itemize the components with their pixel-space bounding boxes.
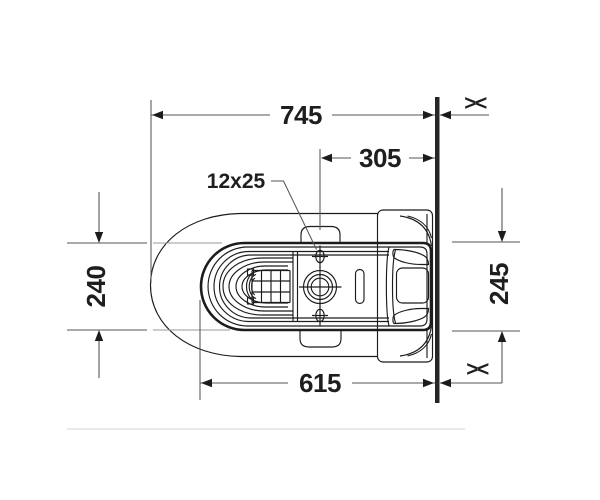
technical-drawing-canvas: 745 305 12x25 240 245 615 <box>0 0 600 500</box>
wall-break-symbol-top: >< <box>464 92 487 115</box>
dimension-245: 245 <box>452 188 520 383</box>
wall-line <box>435 97 440 403</box>
bowl-footprint-outline <box>151 214 378 357</box>
toilet-plan-drawing: 745 305 12x25 240 245 615 <box>0 0 600 500</box>
trapway-grid <box>252 271 290 303</box>
cistern-outline <box>378 210 433 362</box>
flush-plate <box>299 246 364 327</box>
dim-245-label: 245 <box>484 263 514 305</box>
callout-12x25: 12x25 <box>207 170 317 250</box>
wall-reference-top: >< <box>440 92 489 119</box>
toilet-top-view <box>151 210 433 362</box>
dimension-240: 240 <box>67 192 230 378</box>
hole-spec-label: 12x25 <box>207 170 266 193</box>
hinge-tab-bottom <box>300 330 341 347</box>
wall-break-symbol-bottom: >< <box>466 358 489 381</box>
dim-305-label: 305 <box>359 143 401 173</box>
bowl-interior <box>223 252 298 322</box>
dim-615-label: 615 <box>299 368 341 398</box>
dim-745-label: 745 <box>280 100 322 130</box>
dim-240-label: 240 <box>81 266 111 308</box>
cistern-moulding <box>386 247 428 326</box>
plate-slot <box>356 270 365 304</box>
wall-reference-bottom: >< <box>440 358 502 387</box>
leader-line <box>271 181 317 250</box>
